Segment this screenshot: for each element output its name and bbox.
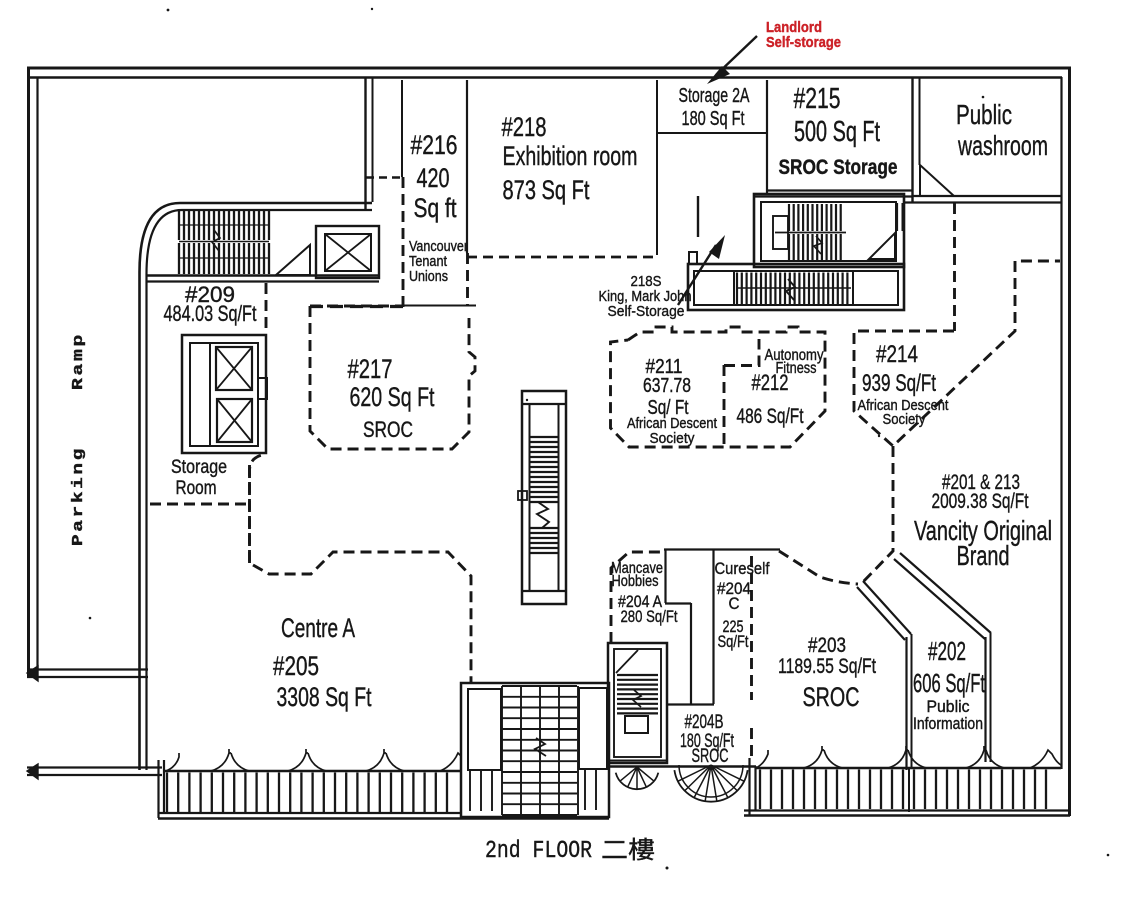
svg-text:#204B: #204B [685, 712, 724, 733]
svg-text:#214: #214 [876, 341, 918, 368]
svg-text:C: C [729, 594, 740, 613]
svg-text:SROC: SROC [692, 746, 729, 767]
svg-text:#215: #215 [794, 83, 841, 115]
svg-text:#217: #217 [348, 354, 393, 384]
svg-text:606 Sq/Ft: 606 Sq/Ft [913, 668, 985, 698]
svg-text:SROC Storage: SROC Storage [779, 156, 898, 179]
svg-text:Exhibition room: Exhibition room [503, 141, 638, 171]
svg-text:637.78: 637.78 [643, 375, 691, 397]
svg-text:Room: Room [176, 478, 217, 499]
svg-text:Centre A: Centre A [281, 613, 355, 643]
svg-text:African Descent: African Descent [627, 416, 717, 432]
svg-text:3308 Sq Ft: 3308 Sq Ft [277, 682, 372, 712]
svg-text:Public: Public [956, 99, 1012, 130]
svg-text:Brand: Brand [957, 540, 1010, 571]
svg-text:#216: #216 [411, 130, 458, 160]
svg-text:二樓: 二樓 [601, 837, 655, 864]
svg-text:420: 420 [417, 163, 450, 193]
svg-text:180 Sq Ft: 180 Sq Ft [682, 108, 745, 130]
svg-text:Society: Society [650, 431, 696, 447]
svg-text:Storage 2A: Storage 2A [679, 85, 750, 107]
svg-text:Society: Society [883, 411, 926, 428]
svg-text:Information: Information [913, 714, 983, 733]
svg-text:873 Sq Ft: 873 Sq Ft [503, 175, 590, 205]
svg-text:Storage: Storage [171, 457, 227, 478]
svg-text:Unions: Unions [409, 268, 448, 285]
svg-text:Ramp: Ramp [70, 332, 87, 390]
svg-text:939 Sq/Ft: 939 Sq/Ft [862, 370, 936, 397]
svg-text:SROC: SROC [803, 682, 860, 712]
svg-text:484.03 Sq/Ft: 484.03 Sq/Ft [164, 301, 257, 326]
svg-text:#218: #218 [502, 112, 547, 142]
svg-text:washroom: washroom [957, 130, 1048, 161]
svg-text:1189.55 Sq/Ft: 1189.55 Sq/Ft [778, 655, 876, 678]
svg-text:280 Sq/Ft: 280 Sq/Ft [621, 607, 678, 626]
svg-text:2009.38 Sq/Ft: 2009.38 Sq/Ft [932, 490, 1029, 513]
svg-text:#203: #203 [808, 634, 846, 657]
svg-text:SROC: SROC [363, 417, 413, 442]
svg-text:Self-storage: Self-storage [766, 34, 841, 51]
svg-text:Self-Storage: Self-Storage [608, 303, 685, 320]
svg-text:#202: #202 [928, 636, 966, 666]
svg-text:#212: #212 [752, 370, 789, 395]
svg-text:500 Sq Ft: 500 Sq Ft [794, 116, 880, 148]
svg-text:620 Sq Ft: 620 Sq Ft [350, 382, 435, 412]
svg-text:Cureself: Cureself [715, 559, 770, 578]
svg-text:2nd FLOOR: 2nd FLOOR [485, 838, 592, 865]
svg-text:Parking: Parking [70, 446, 87, 546]
svg-text:Sq ft: Sq ft [414, 193, 457, 223]
svg-text:#205: #205 [273, 651, 319, 681]
svg-text:Sq/Ft: Sq/Ft [718, 632, 749, 651]
svg-text:Hobbies: Hobbies [612, 573, 659, 590]
svg-text:486 Sq/Ft: 486 Sq/Ft [737, 405, 804, 428]
